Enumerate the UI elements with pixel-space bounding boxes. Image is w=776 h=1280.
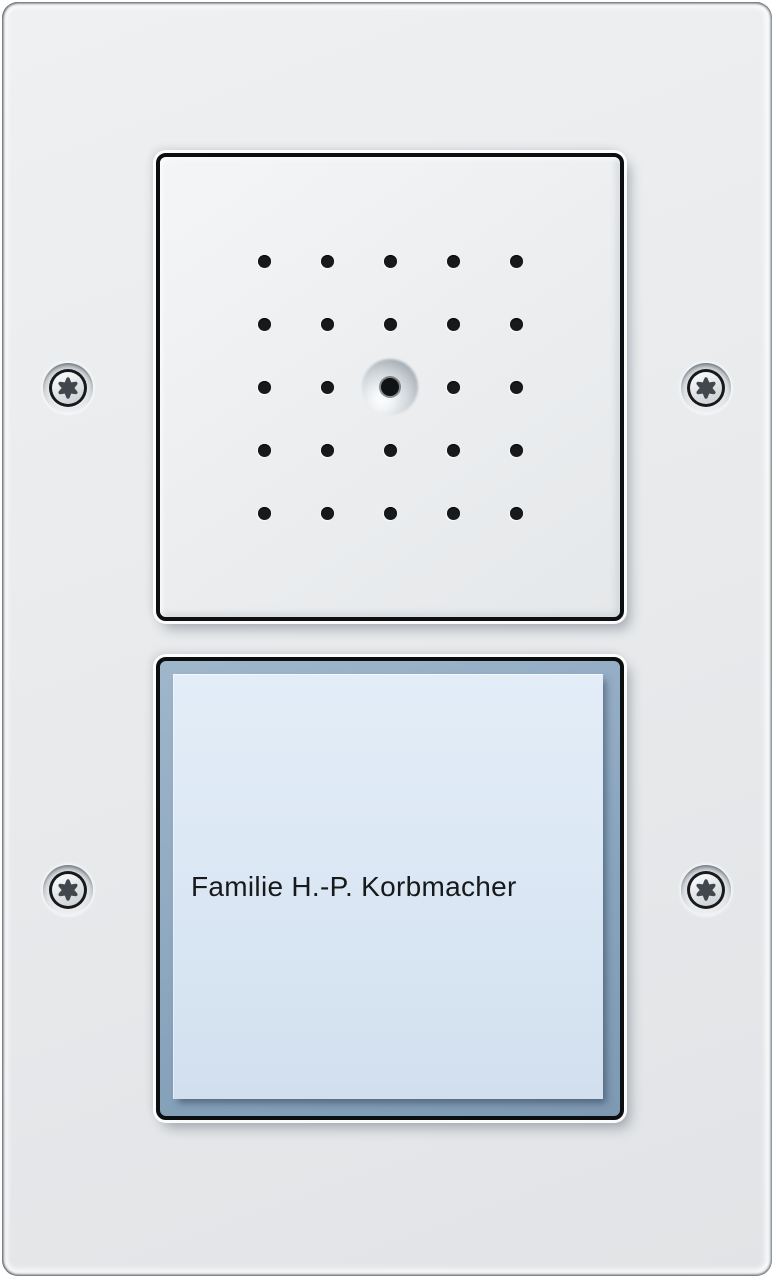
- speaker-hole: [321, 507, 334, 520]
- speaker-hole: [258, 381, 271, 394]
- speaker-module: [156, 153, 624, 621]
- speaker-hole: [321, 381, 334, 394]
- speaker-hole: [258, 444, 271, 457]
- faceplate: Familie H.-P. Korbmacher: [2, 2, 772, 1276]
- screw-bottom-left: [43, 865, 93, 915]
- torx-icon: [693, 877, 719, 903]
- speaker-hole: [447, 507, 460, 520]
- torx-icon: [55, 375, 81, 401]
- screw-top-right: [681, 363, 731, 413]
- speaker-hole: [321, 255, 334, 268]
- speaker-grille: [160, 157, 620, 617]
- screw-top-left: [43, 363, 93, 413]
- speaker-hole: [258, 255, 271, 268]
- speaker-hole: [321, 318, 334, 331]
- speaker-hole: [510, 318, 523, 331]
- speaker-hole: [384, 255, 397, 268]
- torx-icon: [693, 375, 719, 401]
- speaker-hole: [510, 381, 523, 394]
- nameplate-label: Familie H.-P. Korbmacher: [191, 870, 517, 904]
- speaker-hole: [447, 444, 460, 457]
- screw-head: [690, 372, 722, 404]
- speaker-hole: [384, 444, 397, 457]
- screw-bottom-right: [681, 865, 731, 915]
- speaker-hole: [321, 444, 334, 457]
- speaker-hole: [447, 381, 460, 394]
- speaker-hole: [258, 318, 271, 331]
- speaker-hole: [447, 255, 460, 268]
- speaker-hole: [384, 507, 397, 520]
- screw-head: [52, 372, 84, 404]
- microphone-hole: [381, 378, 399, 396]
- speaker-hole: [384, 318, 397, 331]
- torx-icon: [55, 877, 81, 903]
- speaker-hole: [510, 444, 523, 457]
- screw-head: [52, 874, 84, 906]
- call-button[interactable]: Familie H.-P. Korbmacher: [156, 657, 624, 1120]
- speaker-hole: [447, 318, 460, 331]
- speaker-hole: [510, 507, 523, 520]
- nameplate: Familie H.-P. Korbmacher: [173, 674, 603, 1099]
- speaker-hole: [510, 255, 523, 268]
- speaker-hole: [258, 507, 271, 520]
- screw-head: [690, 874, 722, 906]
